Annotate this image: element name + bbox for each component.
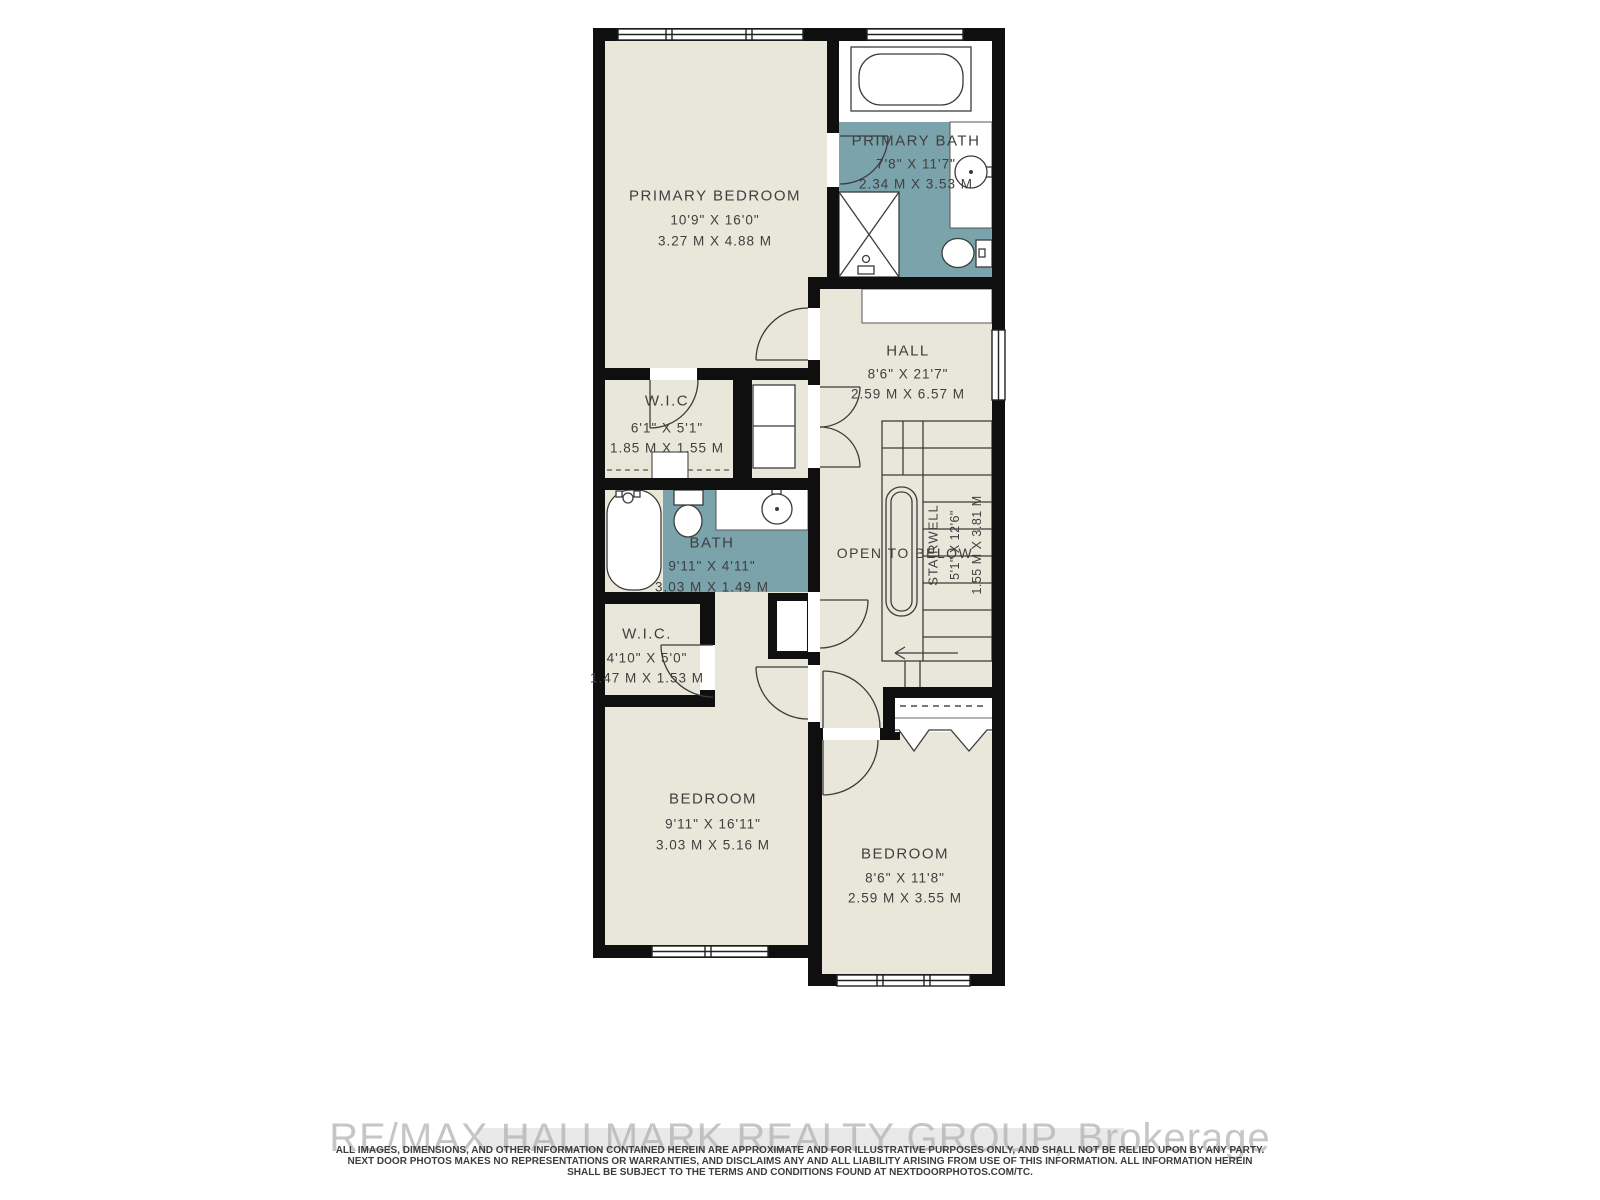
room-dim-imperial-bedroom-left: 9'11" X 16'11" bbox=[665, 817, 761, 832]
floor-plan-drawing bbox=[0, 0, 1600, 1200]
room-dim-metric-bath: 3.03 M X 1.49 M bbox=[655, 580, 769, 595]
room-dim-imperial-primary-bedroom: 10'9" X 16'0" bbox=[670, 213, 759, 228]
room-dim-imperial-primary-bath: 7'8" X 11'7" bbox=[876, 157, 956, 172]
window-bedroom-left bbox=[652, 946, 768, 957]
room-label-primary-bath: PRIMARY BATH bbox=[852, 133, 981, 150]
window-hall bbox=[992, 330, 1005, 400]
room-dim-metric-bedroom-right: 2.59 M X 3.55 M bbox=[848, 891, 962, 906]
toilet bbox=[674, 490, 703, 537]
room-dim-metric-wic-upper: 1.85 M X 1.55 M bbox=[610, 441, 724, 456]
room-dim-metric-hall: 2.59 M X 6.57 M bbox=[851, 387, 965, 402]
room-dim-imperial-bedroom-right: 8'6" X 11'8" bbox=[865, 871, 945, 886]
room-label-bedroom-right: BEDROOM bbox=[861, 846, 949, 863]
floor-plan-page: PRIMARY BEDROOM 10'9" X 16'0" 3.27 M X 4… bbox=[0, 0, 1600, 1200]
disclaimer-line-1: ALL IMAGES, DIMENSIONS, AND OTHER INFORM… bbox=[336, 1145, 1265, 1156]
room-label-bedroom-left: BEDROOM bbox=[669, 791, 757, 808]
primary-toilet bbox=[942, 239, 992, 268]
room-dim-imperial-wic-upper: 6'1" X 5'1" bbox=[631, 421, 703, 436]
window-bedroom-right bbox=[837, 975, 970, 986]
room-label-primary-bedroom: PRIMARY BEDROOM bbox=[629, 188, 801, 205]
room-dim-metric-primary-bath: 2.34 M X 3.53 M bbox=[859, 177, 973, 192]
closet-shelves bbox=[753, 385, 795, 468]
room-dim-imperial-stairwell: 5'1" X 12'6" bbox=[948, 510, 962, 580]
room-label-stairwell: STAIRWELL bbox=[926, 504, 941, 585]
room-dim-imperial-hall: 8'6" X 21'7" bbox=[868, 367, 949, 382]
room-label-hall: HALL bbox=[886, 343, 930, 360]
room-dim-metric-primary-bedroom: 3.27 M X 4.88 M bbox=[658, 234, 772, 249]
disclaimer-line-3: SHALL BE SUBJECT TO THE TERMS AND CONDIT… bbox=[567, 1167, 1033, 1178]
window-primary-bedroom bbox=[618, 29, 803, 40]
bathtub bbox=[607, 490, 661, 590]
room-label-wic-lower: W.I.C. bbox=[622, 626, 672, 643]
room-label-bath: BATH bbox=[690, 535, 735, 552]
room-dim-metric-bedroom-left: 3.03 M X 5.16 M bbox=[656, 838, 770, 853]
room-dim-metric-stairwell: 1.55 M X 3.81 M bbox=[970, 495, 984, 594]
primary-bathtub bbox=[851, 47, 971, 111]
hall-closet-interior bbox=[777, 601, 807, 651]
shower bbox=[839, 192, 899, 277]
window-primary-bath bbox=[867, 29, 963, 40]
room-dim-imperial-wic-lower: 4'10" X 5'0" bbox=[607, 651, 688, 666]
room-dim-metric-wic-lower: 1.47 M X 1.53 M bbox=[590, 671, 704, 686]
room-label-wic-upper: W.I.C bbox=[645, 393, 689, 410]
room-dim-imperial-bath: 9'11" X 4'11" bbox=[668, 559, 755, 574]
disclaimer-line-2: NEXT DOOR PHOTOS MAKES NO REPRESENTATION… bbox=[347, 1156, 1252, 1167]
